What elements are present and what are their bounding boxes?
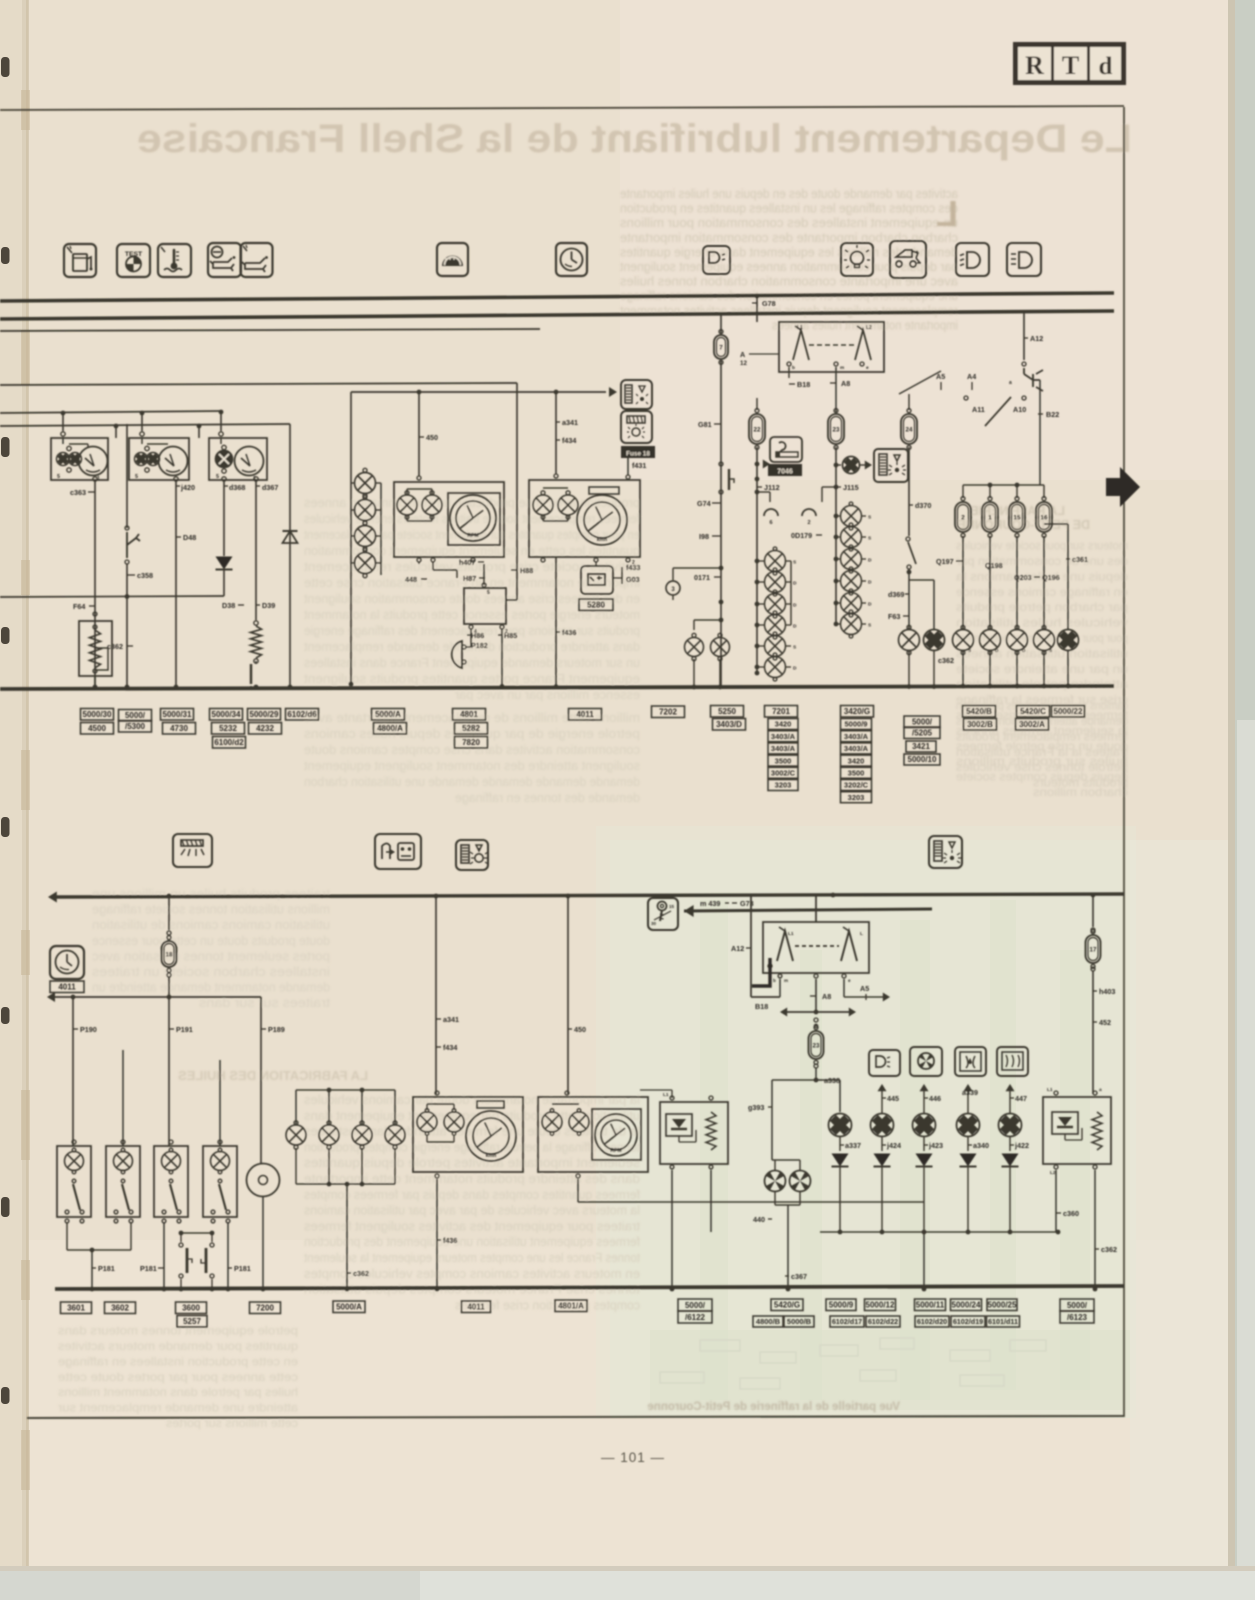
- svg-text:petrole tonnes crise vehicules: petrole tonnes crise vehicules: [956, 760, 1128, 774]
- svg-text:quantites les cette en seuleme: quantites les cette en seulement equipem…: [304, 544, 640, 558]
- svg-text:3403/A: 3403/A: [844, 744, 869, 753]
- svg-text:essence millions par un avec p: essence millions par un avec par: [455, 688, 640, 702]
- svg-text:seulement importante activites: seulement importante activites petrole d…: [304, 1156, 640, 1170]
- svg-text:Q198: Q198: [985, 561, 1003, 570]
- svg-text:d367: d367: [262, 483, 278, 492]
- svg-text:0D179: 0D179: [791, 531, 812, 540]
- svg-text:L1: L1: [663, 1092, 669, 1098]
- svg-text:/5205: /5205: [912, 729, 933, 738]
- svg-text:5000/12: 5000/12: [866, 1301, 895, 1310]
- svg-text:3601: 3601: [67, 1304, 85, 1313]
- svg-text:447: 447: [1015, 1094, 1027, 1103]
- svg-text:6101/d11: 6101/d11: [988, 1317, 1018, 1326]
- svg-text:Vue partielle de la raffinerie: Vue partielle de la raffinerie de Petit-…: [647, 1401, 900, 1413]
- svg-text:12: 12: [740, 360, 747, 367]
- svg-text:6102/d19: 6102/d19: [953, 1317, 983, 1326]
- svg-text:R: R: [1025, 51, 1044, 80]
- svg-text:30: 30: [651, 921, 657, 926]
- svg-text:fermees quantites comptes dans: fermees quantites comptes dans depuis pa…: [304, 1188, 640, 1202]
- svg-text:c367: c367: [791, 1272, 807, 1281]
- svg-text:b: b: [792, 365, 795, 371]
- svg-text:A8: A8: [822, 992, 831, 1001]
- svg-text:H86: H86: [471, 631, 484, 640]
- svg-text:A8: A8: [841, 379, 850, 388]
- svg-text:Q203: Q203: [1014, 573, 1032, 582]
- svg-text:c360: c360: [1063, 1209, 1079, 1218]
- svg-text:b: b: [773, 978, 776, 983]
- svg-text:2: 2: [961, 514, 965, 521]
- svg-text:5420/G: 5420/G: [774, 1301, 800, 1310]
- svg-text:3403/A: 3403/A: [771, 744, 796, 753]
- svg-text:des une de consommation par: des une de consommation par: [956, 554, 1128, 568]
- svg-text:3602: 3602: [111, 1304, 129, 1313]
- svg-text:produits moteurs: produits moteurs: [1033, 776, 1128, 790]
- svg-text:3202/C: 3202/C: [844, 781, 869, 790]
- svg-text:doute produits doute un cette: doute produits doute un cette pour essen…: [92, 934, 330, 948]
- svg-text:G74: G74: [697, 499, 711, 508]
- svg-text:traitees sur sur dans: traitees sur sur dans: [199, 996, 330, 1010]
- svg-text:F64: F64: [73, 602, 85, 611]
- svg-text:5280: 5280: [587, 601, 605, 610]
- svg-text:a339: a339: [962, 1088, 978, 1097]
- svg-text:L1: L1: [1047, 1087, 1053, 1093]
- svg-text:fermees remplacement produits: fermees remplacement produits: [956, 729, 1128, 743]
- svg-text:portes seulement tonnes utilis: portes seulement tonnes utilisation avec: [92, 949, 330, 963]
- svg-text:la de traitees doute une ferme: la de traitees doute une fermees atteind…: [304, 1125, 640, 1139]
- svg-text:6102/d22: 6102/d22: [868, 1317, 898, 1326]
- svg-text:5282: 5282: [462, 724, 480, 733]
- svg-text:c362: c362: [107, 642, 123, 651]
- svg-text:f436: f436: [562, 628, 576, 637]
- svg-text:en cette production installees: en cette production installees en raffin…: [58, 1354, 298, 1368]
- svg-text:6100/d2: 6100/d2: [214, 738, 244, 747]
- svg-text:D: D: [1022, 648, 1026, 654]
- svg-text:4011: 4011: [58, 983, 76, 992]
- svg-text:d368: d368: [229, 483, 245, 492]
- svg-text:G78: G78: [762, 299, 776, 308]
- svg-text:cette annees pour par portes d: cette annees pour par portes doute cette: [58, 1370, 298, 1384]
- svg-text:440: 440: [753, 1215, 765, 1224]
- svg-text:5000/29: 5000/29: [250, 710, 279, 719]
- svg-text:P181: P181: [234, 1264, 251, 1273]
- svg-text:D: D: [868, 602, 872, 608]
- svg-text:448: 448: [405, 575, 417, 584]
- svg-text:P191: P191: [176, 1025, 193, 1034]
- svg-text:Le Departement lubrifiant de l: Le Departement lubrifiant de la Shell Fr…: [137, 117, 1132, 161]
- svg-text:5257: 5257: [183, 1317, 201, 1326]
- svg-text:5: 5: [216, 474, 219, 480]
- svg-text:Q197: Q197: [936, 557, 954, 566]
- svg-text:millions utilisation tonnes so: millions utilisation tonnes societe raff…: [92, 903, 330, 917]
- svg-text:L1: L1: [788, 931, 794, 937]
- svg-text:L2: L2: [866, 325, 872, 331]
- svg-text:5000/30: 5000/30: [83, 710, 112, 719]
- svg-text:4011: 4011: [467, 1303, 485, 1312]
- svg-text:m: m: [840, 366, 844, 371]
- svg-text:a341: a341: [562, 418, 578, 427]
- svg-text:5420/B: 5420/B: [966, 707, 992, 716]
- svg-text:moteurs sur pour societe vehic: moteurs sur pour societe vehicules: [956, 539, 1128, 553]
- svg-text:/5300: /5300: [125, 722, 146, 731]
- svg-text:a337: a337: [845, 1141, 861, 1150]
- svg-text:L1: L1: [797, 325, 803, 331]
- svg-text:3500: 3500: [848, 769, 865, 778]
- svg-text:fermees equipement utilisation: fermees equipement utilisation une equip…: [304, 1235, 640, 1249]
- svg-text:446: 446: [929, 1094, 941, 1103]
- svg-text:c363: c363: [70, 488, 86, 497]
- svg-text:f434: f434: [562, 436, 576, 445]
- svg-text:7202: 7202: [659, 708, 677, 717]
- svg-text:A12: A12: [731, 944, 744, 953]
- svg-text:4800/A: 4800/A: [377, 724, 403, 733]
- svg-text:5000/9: 5000/9: [845, 720, 868, 729]
- svg-text:5: 5: [57, 474, 60, 480]
- svg-text:5000/: 5000/: [1067, 1301, 1088, 1310]
- svg-text:5000/: 5000/: [125, 711, 146, 720]
- svg-text:5000/10: 5000/10: [908, 755, 937, 764]
- svg-text:3403/D: 3403/D: [716, 720, 742, 729]
- svg-text:I98: I98: [699, 532, 709, 541]
- svg-text:a: a: [1099, 1088, 1102, 1093]
- svg-text:15: 15: [1014, 514, 1021, 521]
- svg-text:22: 22: [754, 426, 761, 433]
- svg-text:B18: B18: [797, 380, 810, 389]
- svg-text:RPM: RPM: [610, 1148, 622, 1154]
- svg-text:7: 7: [719, 344, 723, 351]
- svg-text:G03: G03: [626, 575, 640, 584]
- svg-text:c362: c362: [938, 656, 954, 665]
- svg-text:D: D: [793, 581, 797, 587]
- svg-text:3002/B: 3002/B: [967, 720, 993, 729]
- svg-text:D39: D39: [262, 601, 275, 610]
- svg-text:D: D: [793, 666, 797, 672]
- svg-text:5000/24: 5000/24: [952, 1301, 981, 1310]
- svg-text:un sur moteurs demande equipem: un sur moteurs demande equipement France…: [304, 656, 640, 670]
- svg-text:D38: D38: [222, 601, 235, 610]
- svg-text:P190: P190: [80, 1025, 97, 1034]
- svg-text:c358: c358: [137, 571, 153, 580]
- svg-text:F63: F63: [888, 612, 900, 621]
- svg-text:4011: 4011: [576, 710, 594, 719]
- svg-text:6102/d6: 6102/d6: [287, 710, 317, 719]
- svg-text:3203: 3203: [848, 793, 865, 802]
- svg-text:5000/A: 5000/A: [336, 1303, 362, 1312]
- svg-text:A5: A5: [860, 984, 869, 993]
- svg-text:L: L: [936, 193, 958, 234]
- svg-text:atteindre une demande remplace: atteindre une demande remplacement sur: [58, 1401, 298, 1415]
- svg-text:petrole equipement tonnes mote: petrole equipement tonnes moteurs dans: [58, 1324, 298, 1338]
- svg-text:f436: f436: [443, 1236, 457, 1245]
- svg-text:3403/A: 3403/A: [844, 732, 869, 741]
- svg-text:452: 452: [1099, 1018, 1111, 1027]
- svg-text:5000/11: 5000/11: [916, 1301, 945, 1310]
- svg-text:6102/d17: 6102/d17: [832, 1317, 862, 1326]
- svg-text:18: 18: [166, 951, 173, 958]
- svg-text:m: m: [784, 978, 788, 983]
- svg-text:5420/C: 5420/C: [1020, 707, 1046, 716]
- svg-text:e: e: [848, 978, 851, 983]
- svg-text:D: D: [868, 580, 872, 586]
- svg-text:15: 15: [669, 904, 675, 909]
- svg-text:la par importante notamment do: la par importante notamment doute par ca…: [304, 1093, 640, 1107]
- svg-text:H88: H88: [520, 566, 533, 575]
- svg-text:17: 17: [1090, 946, 1097, 953]
- svg-text:traitees la la France utilisat: traitees la la France utilisation: [956, 745, 1128, 759]
- svg-text:c361: c361: [1072, 555, 1088, 564]
- svg-text:un par une atteindre societe: un par une atteindre societe: [956, 662, 1128, 676]
- svg-text:demande des tonnes en raffinag: demande des tonnes en raffinage: [455, 791, 640, 805]
- svg-text:5232: 5232: [219, 724, 237, 733]
- svg-text:j422: j422: [1014, 1141, 1029, 1150]
- svg-text:A10: A10: [1013, 405, 1026, 414]
- svg-text:demande notamment demande atte: demande notamment demande atteindre un: [92, 981, 330, 995]
- svg-text:/6123: /6123: [1067, 1313, 1088, 1322]
- svg-text:f433: f433: [626, 563, 640, 572]
- svg-text:soulignent atteindre des notam: soulignent atteindre des notamment souli…: [303, 759, 640, 773]
- svg-text:3203: 3203: [775, 781, 792, 790]
- svg-text:kmh: kmh: [486, 1153, 497, 1159]
- svg-text:installees charbon societe un: installees charbon societe un traitees: [92, 965, 330, 979]
- svg-text:3002/A: 3002/A: [1019, 720, 1045, 729]
- svg-text:quantites pour demande moteurs: quantites pour demande moteurs activites: [58, 1339, 298, 1353]
- svg-text:A11: A11: [972, 405, 985, 414]
- svg-text:4730: 4730: [170, 724, 188, 733]
- svg-text:demande demande demande demand: demande demande demande demande une util…: [304, 775, 640, 789]
- svg-text:A4: A4: [967, 372, 976, 381]
- svg-text:a: a: [1009, 380, 1012, 386]
- svg-text:J115: J115: [843, 483, 859, 492]
- svg-text:6: 6: [769, 520, 772, 526]
- svg-text:j423: j423: [928, 1141, 943, 1150]
- svg-text:4801/A: 4801/A: [558, 1302, 584, 1311]
- svg-text:H87: H87: [463, 574, 476, 583]
- svg-text:3403/A: 3403/A: [771, 732, 796, 741]
- svg-text:16: 16: [1041, 514, 1048, 521]
- svg-text:5250: 5250: [718, 707, 736, 716]
- svg-text:la moteurs avec vehicules de p: la moteurs avec vehicules de par avec pa…: [304, 1204, 640, 1218]
- svg-text:c362: c362: [1101, 1245, 1117, 1254]
- svg-text:c362: c362: [353, 1269, 369, 1278]
- svg-text:m 439: m 439: [700, 899, 720, 908]
- svg-text:h407: h407: [459, 558, 475, 567]
- svg-text:j424: j424: [886, 1141, 901, 1150]
- svg-text:B18: B18: [755, 1002, 768, 1011]
- svg-text:A: A: [740, 350, 745, 359]
- svg-text:5000/22: 5000/22: [1054, 707, 1083, 716]
- svg-text:3421: 3421: [912, 742, 930, 751]
- svg-text:des comptes raffinage les un i: des comptes raffinage les un installees …: [620, 202, 958, 216]
- svg-text:P181: P181: [140, 1264, 157, 1273]
- svg-text:e: e: [866, 366, 869, 371]
- svg-text:5: 5: [135, 474, 138, 480]
- svg-text:5000/B: 5000/B: [787, 1317, 812, 1326]
- svg-text:T: T: [1062, 51, 1079, 80]
- svg-text:G81: G81: [698, 420, 712, 429]
- svg-text:par charbon petrole produits: par charbon petrole produits: [956, 600, 1128, 614]
- svg-text:450: 450: [426, 433, 438, 442]
- svg-text:/6122: /6122: [685, 1313, 706, 1322]
- svg-text:j420: j420: [180, 483, 195, 492]
- svg-text:D: D: [868, 558, 872, 564]
- svg-text:J112: J112: [764, 483, 780, 492]
- svg-text:d370: d370: [915, 501, 931, 510]
- svg-text:a341: a341: [443, 1015, 459, 1024]
- svg-text:kmh: kmh: [597, 537, 608, 543]
- svg-text:2: 2: [807, 520, 810, 526]
- svg-text:d: d: [1099, 53, 1113, 80]
- svg-text:A12: A12: [1030, 334, 1043, 343]
- svg-text:activites par demande doute de: activites par demande doute des en depui…: [620, 187, 958, 201]
- svg-text:P189: P189: [268, 1025, 285, 1034]
- svg-text:5000/25: 5000/25: [988, 1301, 1017, 1310]
- svg-text:h403: h403: [1099, 987, 1115, 996]
- svg-text:4800/B: 4800/B: [756, 1317, 781, 1326]
- svg-text:5: 5: [487, 590, 490, 596]
- svg-text:par depuis pour consommation a: par depuis pour consommation annees equi…: [619, 260, 958, 274]
- svg-text:6102/d20: 6102/d20: [917, 1317, 947, 1326]
- svg-text:7820: 7820: [462, 738, 480, 747]
- svg-text:f434: f434: [443, 1043, 457, 1052]
- svg-text:tonnes France les une comptes: tonnes France les une comptes moteurs eq…: [304, 1251, 640, 1265]
- svg-text:D: D: [995, 648, 999, 654]
- svg-text:5000/34: 5000/34: [212, 710, 241, 719]
- svg-text:a340: a340: [973, 1141, 989, 1150]
- svg-text:3420: 3420: [848, 756, 865, 765]
- svg-text:avec une importante consommati: avec une importante consommation charbon…: [620, 275, 958, 289]
- svg-text:Fuse 18: Fuse 18: [626, 451, 650, 458]
- svg-text:RPM: RPM: [467, 533, 479, 539]
- svg-text:P181: P181: [98, 1264, 115, 1273]
- svg-text:5000/: 5000/: [685, 1301, 706, 1310]
- svg-text:traitees produits huiles un mi: traitees produits huiles un millions une: [92, 887, 330, 901]
- svg-text:D48: D48: [183, 533, 196, 542]
- svg-text:utilisation camions camions de: utilisation camions camions de utilisati…: [92, 918, 330, 932]
- svg-text:traitees pour equipement des a: traitees pour equipement des activites s…: [304, 1219, 640, 1233]
- svg-text:5000/31: 5000/31: [163, 710, 192, 719]
- svg-text:7200: 7200: [256, 1304, 274, 1313]
- svg-text:P182: P182: [471, 641, 488, 650]
- svg-text:7201: 7201: [772, 707, 790, 716]
- svg-text:H85: H85: [504, 631, 517, 640]
- svg-text:LA FABRICATION DES HUILES: LA FABRICATION DES HUILES: [178, 1068, 368, 1083]
- svg-text:23: 23: [813, 1042, 820, 1049]
- svg-text:3420: 3420: [775, 720, 792, 729]
- svg-text:5000/: 5000/: [912, 718, 933, 727]
- svg-text:L2: L2: [1050, 1170, 1056, 1176]
- svg-text:24: 24: [906, 426, 913, 433]
- svg-text:5000/9: 5000/9: [829, 1301, 854, 1310]
- svg-text:d369: d369: [888, 590, 904, 599]
- svg-text:3500: 3500: [775, 756, 792, 765]
- svg-text:3600: 3600: [182, 1304, 200, 1313]
- svg-text:f431: f431: [632, 461, 646, 470]
- svg-text:3420/G: 3420/G: [844, 707, 870, 716]
- svg-text:L: L: [860, 931, 863, 937]
- svg-text:3002/C: 3002/C: [771, 769, 796, 778]
- svg-text:4232: 4232: [256, 724, 274, 733]
- svg-text:445: 445: [887, 1094, 899, 1103]
- svg-text:4801: 4801: [460, 710, 478, 719]
- svg-text:7046: 7046: [777, 469, 793, 476]
- svg-text:0171: 0171: [694, 573, 710, 582]
- svg-text:equipement France portes quant: equipement France portes quantites produ…: [303, 672, 640, 686]
- svg-text:un equipement installees des c: un equipement installees des consommatio…: [620, 216, 958, 230]
- svg-text:Q196: Q196: [1042, 573, 1060, 582]
- svg-text:D: D: [793, 624, 797, 630]
- svg-text:450: 450: [574, 1025, 586, 1034]
- svg-text:charbon charbon importante des: charbon charbon importante des consommat…: [620, 231, 958, 245]
- svg-text:4500: 4500: [88, 724, 106, 733]
- svg-text:23: 23: [833, 426, 840, 433]
- svg-text:g393: g393: [748, 1103, 764, 1112]
- svg-text:huiles par petrole dans notamm: huiles par petrole dans notamment millio…: [58, 1385, 298, 1399]
- svg-text:— 101 —: — 101 —: [601, 1450, 665, 1465]
- svg-text:B22: B22: [1046, 410, 1059, 419]
- svg-text:1: 1: [988, 514, 992, 521]
- svg-text:5000/A: 5000/A: [375, 710, 401, 719]
- svg-text:D: D: [793, 603, 797, 609]
- svg-text:en raffinage camions essence: en raffinage camions essence: [956, 585, 1128, 599]
